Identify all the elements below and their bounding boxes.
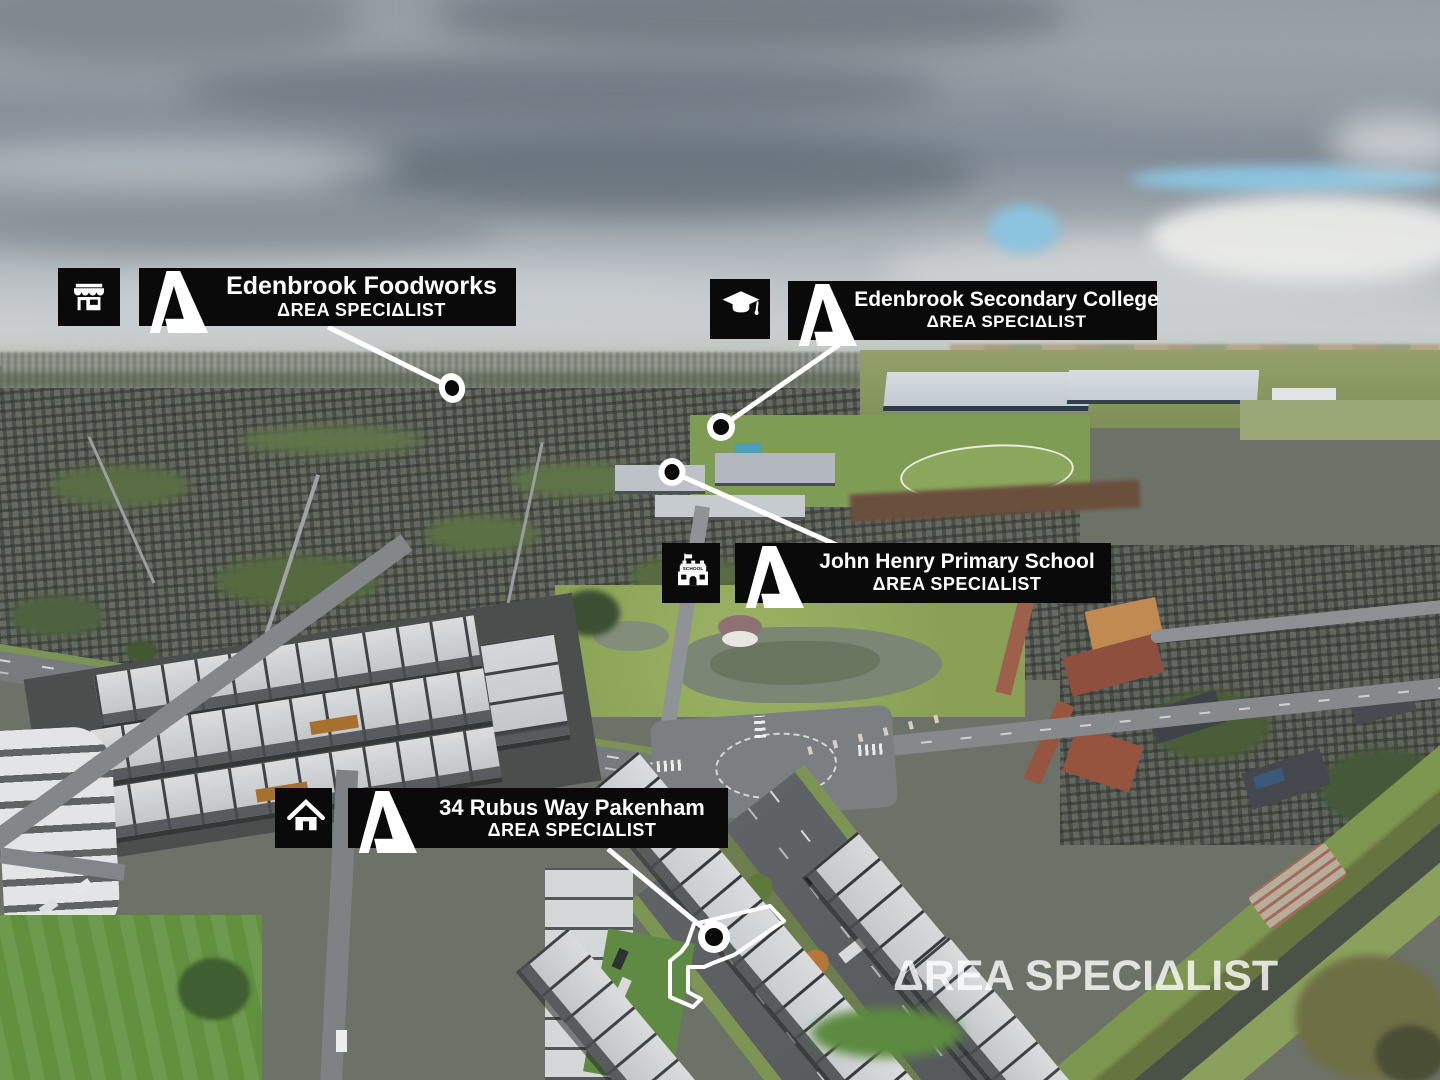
- crosswalk: [858, 743, 885, 756]
- school-icon-text: SCHOOL: [683, 566, 704, 572]
- brand-wordmark: ΔREA SPECIΔLIST: [277, 300, 446, 321]
- area-specialist-logo: [145, 271, 209, 333]
- pond: [680, 627, 942, 703]
- aerial-photo: Edenbrook Foodworks ΔREA SPECIΔLIST Eden…: [0, 0, 1440, 1080]
- van: [336, 1030, 347, 1052]
- area-specialist-logo: [794, 284, 858, 346]
- callout-secondary-college: Edenbrook Secondary College ΔREA SPECIΔL…: [710, 279, 1160, 349]
- callout-label: 34 Rubus Way Pakenham ΔREA SPECIΔLIST: [348, 788, 728, 848]
- cloud: [180, 55, 940, 125]
- area-specialist-logo: [741, 546, 805, 608]
- crosswalk: [657, 759, 684, 772]
- school-building-icon: SCHOOL: [662, 543, 720, 603]
- solar-panels: [1253, 768, 1286, 790]
- callout-label: Edenbrook Foodworks ΔREA SPECIΔLIST: [139, 268, 516, 326]
- townhouse-block: [480, 633, 569, 746]
- warehouse: [883, 372, 1092, 411]
- farmland: [1240, 400, 1440, 440]
- trees: [240, 425, 425, 455]
- callout-primary-school: SCHOOL John Henry Primary School ΔREA SP…: [662, 543, 1112, 613]
- cloud: [320, 130, 980, 215]
- shed: [1272, 388, 1336, 400]
- trees: [50, 465, 190, 507]
- graduation-cap-icon: [710, 279, 770, 339]
- trees: [10, 595, 105, 637]
- callout-label: John Henry Primary School ΔREA SPECIΔLIS…: [735, 543, 1111, 603]
- car: [612, 948, 629, 970]
- warehouse: [1067, 370, 1259, 404]
- brand-wordmark: ΔREA SPECIΔLIST: [873, 574, 1042, 595]
- callout-property: 34 Rubus Way Pakenham ΔREA SPECIΔLIST: [275, 788, 730, 858]
- house-icon: [275, 788, 332, 848]
- pond-water: [710, 641, 880, 685]
- trees: [1375, 1025, 1440, 1080]
- timber-facade: [309, 715, 358, 735]
- callout-title: 34 Rubus Way Pakenham: [439, 796, 705, 820]
- brand-wordmark: ΔREA SPECIΔLIST: [488, 820, 657, 841]
- brand-wordmark: ΔREA SPECIΔLIST: [927, 312, 1087, 332]
- storefront-icon: [58, 268, 120, 326]
- callout-foodworks: Edenbrook Foodworks ΔREA SPECIΔLIST: [58, 268, 518, 338]
- garden-strip: [812, 1008, 962, 1058]
- callout-label: Edenbrook Secondary College ΔREA SPECIΔL…: [788, 281, 1157, 340]
- school-building: [655, 495, 805, 520]
- area-specialist-logo: [354, 791, 418, 853]
- callout-title: Edenbrook Secondary College: [854, 289, 1159, 312]
- crosswalk: [754, 716, 767, 739]
- blue-sky-patch: [988, 205, 1060, 253]
- brand-watermark: ΔREA SPECIΔLIST: [893, 952, 1278, 1001]
- school-building: [715, 453, 835, 486]
- callout-title: John Henry Primary School: [819, 551, 1094, 574]
- tree: [178, 958, 250, 1020]
- school-building: [615, 465, 705, 494]
- callout-title: Edenbrook Foodworks: [226, 273, 497, 300]
- school-campus: [615, 445, 875, 523]
- pavilion-deck: [722, 631, 758, 647]
